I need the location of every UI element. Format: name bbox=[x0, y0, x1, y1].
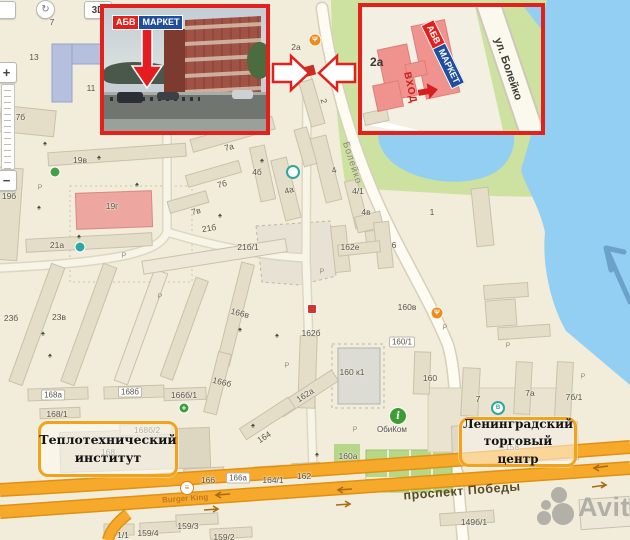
building-label: 21а bbox=[50, 240, 64, 250]
street-label-boleyko: Болейко bbox=[340, 140, 364, 185]
building-label: 7 bbox=[476, 394, 481, 404]
building-label: 162б bbox=[301, 328, 320, 338]
stop-icon: В bbox=[491, 401, 505, 415]
callout-trade-center-line2: торговый центр bbox=[462, 433, 574, 468]
tree-icon: ♠ bbox=[251, 423, 255, 430]
food-icon: Ψ bbox=[431, 307, 444, 320]
building-label: 164/1 bbox=[262, 475, 283, 485]
building-label: 7а bbox=[223, 141, 235, 153]
building-label: 19в bbox=[73, 155, 87, 165]
parking-icon: Р bbox=[506, 343, 511, 350]
building-label: 159/2 bbox=[213, 532, 234, 540]
building-label: 168а bbox=[41, 390, 65, 401]
tree-icon: ♠ bbox=[37, 205, 41, 212]
building-label: 159/4 bbox=[137, 528, 158, 538]
info-icon: i bbox=[389, 407, 407, 425]
building-label: 4б bbox=[252, 167, 262, 177]
parking-icon: Р bbox=[122, 253, 127, 260]
building-label: 164 bbox=[255, 429, 272, 445]
building-label: 166б/1 bbox=[171, 390, 197, 400]
building-label: 21б bbox=[201, 222, 217, 234]
parking-icon: Р bbox=[353, 427, 358, 434]
parking-icon: Р bbox=[320, 269, 325, 276]
tree-icon: ♠ bbox=[260, 158, 264, 165]
building-label: 21б/1 bbox=[237, 242, 258, 252]
building-label: 168б bbox=[118, 387, 142, 398]
tree-icon: ♠ bbox=[218, 213, 222, 220]
zoom-in-button[interactable]: + bbox=[0, 62, 17, 83]
parking-icon: Р bbox=[158, 294, 163, 301]
building-label: 4/1 bbox=[352, 186, 364, 196]
inset-building-number: 2а bbox=[370, 55, 383, 69]
building-label: 2а bbox=[291, 42, 300, 52]
building-label: 19б bbox=[2, 191, 16, 201]
building-label: 4в bbox=[361, 207, 370, 217]
building-label: 149б/1 bbox=[461, 517, 487, 527]
tree-icon: ♠ bbox=[43, 141, 47, 148]
photo-car bbox=[232, 90, 253, 99]
building-label: 1 bbox=[430, 207, 435, 217]
tree-icon: ♠ bbox=[275, 333, 279, 340]
tree-icon: ♠ bbox=[41, 331, 45, 338]
building-label: 159/3 bbox=[177, 521, 198, 531]
building-label: 160а bbox=[339, 451, 358, 461]
building-label: 166в bbox=[230, 306, 251, 320]
building-label: 162 bbox=[297, 471, 311, 481]
building-label: 162е bbox=[341, 242, 360, 252]
street-label-pobedy: проспект Победы bbox=[403, 479, 521, 502]
compass-button[interactable]: ↻ bbox=[36, 0, 55, 19]
photo-inset: АБВМАРКЕТ bbox=[100, 4, 270, 135]
building-label: 160в bbox=[398, 302, 417, 312]
parking-icon: Р bbox=[443, 325, 448, 332]
tree-icon: ♠ bbox=[315, 452, 319, 459]
building-label: 168/1 bbox=[46, 409, 67, 419]
photo-car bbox=[117, 92, 143, 103]
abv-market-logo: АБВМАРКЕТ bbox=[112, 15, 183, 30]
shop-red-icon bbox=[307, 304, 317, 314]
tree-icon: ♠ bbox=[77, 234, 81, 241]
map-canvas[interactable]: Болейко проспект Победы ≡ Burger King i … bbox=[0, 0, 630, 540]
building-label: 7в bbox=[190, 205, 202, 217]
callout-institute-line1: Теплотехнический bbox=[39, 431, 176, 449]
building-label: 160/1 bbox=[389, 337, 415, 348]
building-label: 1/1 bbox=[117, 530, 129, 540]
sign-teal-icon bbox=[75, 242, 86, 253]
callout-institute-line2: институт bbox=[75, 449, 142, 467]
building-label: 4а bbox=[283, 184, 295, 196]
building-label: 166а bbox=[226, 473, 250, 484]
tree-icon: ♠ bbox=[238, 327, 242, 334]
building-label: 160 к1 bbox=[340, 367, 365, 377]
building-label: 2 bbox=[319, 97, 330, 104]
building-label: 166 bbox=[201, 475, 215, 485]
map-inset: 2а АБВМАРКЕТ ВХОД ул. Болейко bbox=[358, 3, 545, 135]
sign-green-icon bbox=[50, 167, 61, 178]
parking-icon: Р bbox=[581, 374, 586, 381]
building-label: 160 bbox=[423, 373, 437, 383]
red-down-arrow-icon bbox=[130, 22, 164, 92]
zoom-slider[interactable] bbox=[1, 84, 15, 170]
photo-tree bbox=[247, 42, 270, 79]
stop-icon bbox=[286, 165, 300, 179]
building-label: 6 bbox=[392, 240, 397, 250]
parking-icon: Р bbox=[285, 363, 290, 370]
building-label: 13 bbox=[29, 52, 38, 62]
photo-sidewalk bbox=[104, 119, 266, 131]
avito-watermark-text: Avito bbox=[578, 492, 630, 523]
tree-icon: ♠ bbox=[97, 155, 101, 162]
building-label: 162а bbox=[294, 386, 315, 405]
photo-car bbox=[157, 92, 178, 101]
food-icon: Ψ bbox=[309, 34, 322, 47]
building-label: 11 bbox=[87, 83, 96, 93]
avito-logo-icon bbox=[534, 486, 576, 528]
parking-icon: Р bbox=[38, 185, 43, 192]
callout-institute: Теплотехнический институт bbox=[38, 421, 178, 477]
building-label: 23в bbox=[52, 312, 66, 322]
building-label: 19г bbox=[106, 201, 119, 211]
tree-icon: ♠ bbox=[135, 182, 139, 189]
building-label: 7б bbox=[216, 178, 228, 190]
ruler-tool-button[interactable] bbox=[0, 1, 16, 19]
callout-trade-center-line1: Ленинградский bbox=[463, 416, 573, 433]
building-label: 7а bbox=[525, 388, 534, 398]
building-label: 7 bbox=[50, 17, 55, 27]
tree-icon: ♠ bbox=[48, 353, 52, 360]
callout-trade-center: Ленинградский торговый центр bbox=[459, 417, 577, 467]
avito-watermark: Avito bbox=[534, 486, 630, 528]
pharmacy-icon: + bbox=[179, 403, 190, 414]
building-label: 166б bbox=[212, 375, 233, 389]
building-label: 7б/1 bbox=[566, 392, 583, 402]
building-label: 23б bbox=[4, 313, 18, 323]
zoom-out-button[interactable]: − bbox=[0, 170, 17, 191]
building-label: 4 bbox=[330, 165, 337, 176]
